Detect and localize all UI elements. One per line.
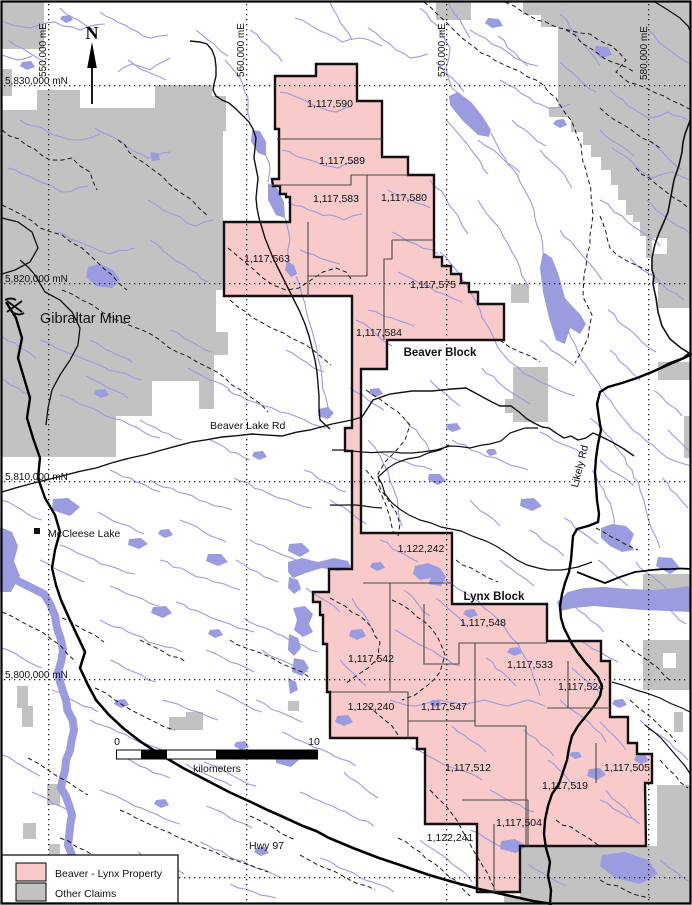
svg-text:1,117,548: 1,117,548 (460, 617, 506, 629)
svg-text:570,000 mE: 570,000 mE (437, 23, 448, 77)
svg-text:1,117,504: 1,117,504 (496, 817, 542, 829)
svg-text:1,117,519: 1,117,519 (542, 780, 588, 792)
svg-text:1,122,240: 1,122,240 (348, 701, 395, 713)
svg-text:1,117,580: 1,117,580 (381, 192, 427, 204)
svg-text:Beaver - Lynx Property: Beaver - Lynx Property (55, 868, 163, 880)
svg-text:1,117,542: 1,117,542 (348, 653, 394, 665)
svg-text:1,117,512: 1,117,512 (445, 762, 491, 774)
svg-text:1,122,241: 1,122,241 (427, 832, 474, 844)
svg-text:550,000 mE: 550,000 mE (38, 23, 49, 77)
svg-text:1,117,589: 1,117,589 (319, 155, 365, 167)
svg-text:10: 10 (308, 736, 320, 748)
svg-text:0: 0 (114, 736, 120, 748)
svg-text:1,117,590: 1,117,590 (307, 98, 353, 110)
svg-text:Other Claims: Other Claims (55, 888, 116, 900)
svg-text:Beaver Lake Rd: Beaver Lake Rd (210, 420, 285, 432)
svg-text:Gibraltar Mine: Gibraltar Mine (40, 311, 131, 327)
svg-text:Lynx Block: Lynx Block (464, 591, 526, 603)
svg-text:McCleese Lake: McCleese Lake (48, 528, 121, 540)
svg-text:5,810,000 mN: 5,810,000 mN (5, 472, 68, 483)
svg-text:580,000 mE: 580,000 mE (639, 26, 650, 80)
svg-text:1,117,575: 1,117,575 (410, 279, 456, 291)
svg-text:5,800,000 mN: 5,800,000 mN (5, 670, 68, 681)
svg-text:5,830,000 mN: 5,830,000 mN (5, 76, 68, 87)
svg-text:1,117,584: 1,117,584 (356, 327, 402, 339)
svg-text:1,117,547: 1,117,547 (421, 701, 467, 713)
svg-text:560,000 mE: 560,000 mE (236, 23, 247, 77)
svg-text:Hwy 97: Hwy 97 (249, 840, 284, 852)
svg-text:kilometers: kilometers (193, 763, 241, 775)
svg-text:1,117,505: 1,117,505 (604, 762, 650, 774)
svg-text:1,117,524: 1,117,524 (558, 681, 604, 693)
svg-text:5,820,000 mN: 5,820,000 mN (5, 274, 68, 285)
svg-text:1,117,533: 1,117,533 (507, 659, 553, 671)
svg-text:1,117,563: 1,117,563 (244, 253, 290, 265)
svg-text:1,117,583: 1,117,583 (313, 193, 359, 205)
svg-text:Beaver Block: Beaver Block (404, 347, 477, 359)
svg-text:1,122,242: 1,122,242 (398, 543, 445, 555)
svg-text:N: N (86, 23, 99, 43)
